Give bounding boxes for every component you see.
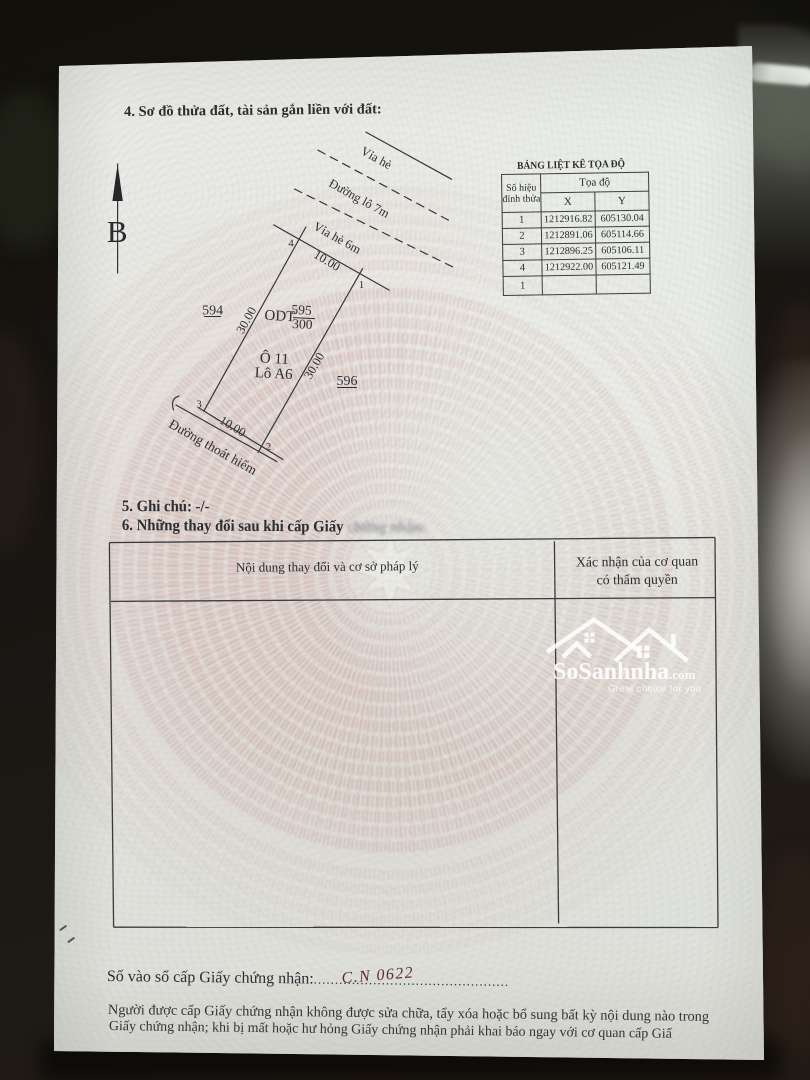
svg-text:1: 1	[359, 279, 365, 291]
svg-text:30.00: 30.00	[233, 305, 259, 336]
svg-text:Đường lô 7m: Đường lô 7m	[327, 176, 393, 221]
svg-text:Great choice for you: Great choice for you	[608, 684, 702, 695]
svg-text:596: 596	[337, 374, 358, 389]
svg-text:30.00: 30.00	[301, 350, 327, 381]
svg-text:10.00: 10.00	[311, 247, 342, 273]
svg-text:Vỉa hè: Vỉa hè	[358, 144, 394, 172]
svg-text:Lô A6: Lô A6	[254, 365, 293, 383]
svg-text:4: 4	[288, 238, 294, 250]
svg-text:B: B	[107, 214, 128, 249]
svg-text:SoSanhnha.com: SoSanhnha.com	[553, 659, 696, 685]
svg-text:3: 3	[196, 399, 202, 411]
svg-text:2: 2	[266, 441, 272, 453]
